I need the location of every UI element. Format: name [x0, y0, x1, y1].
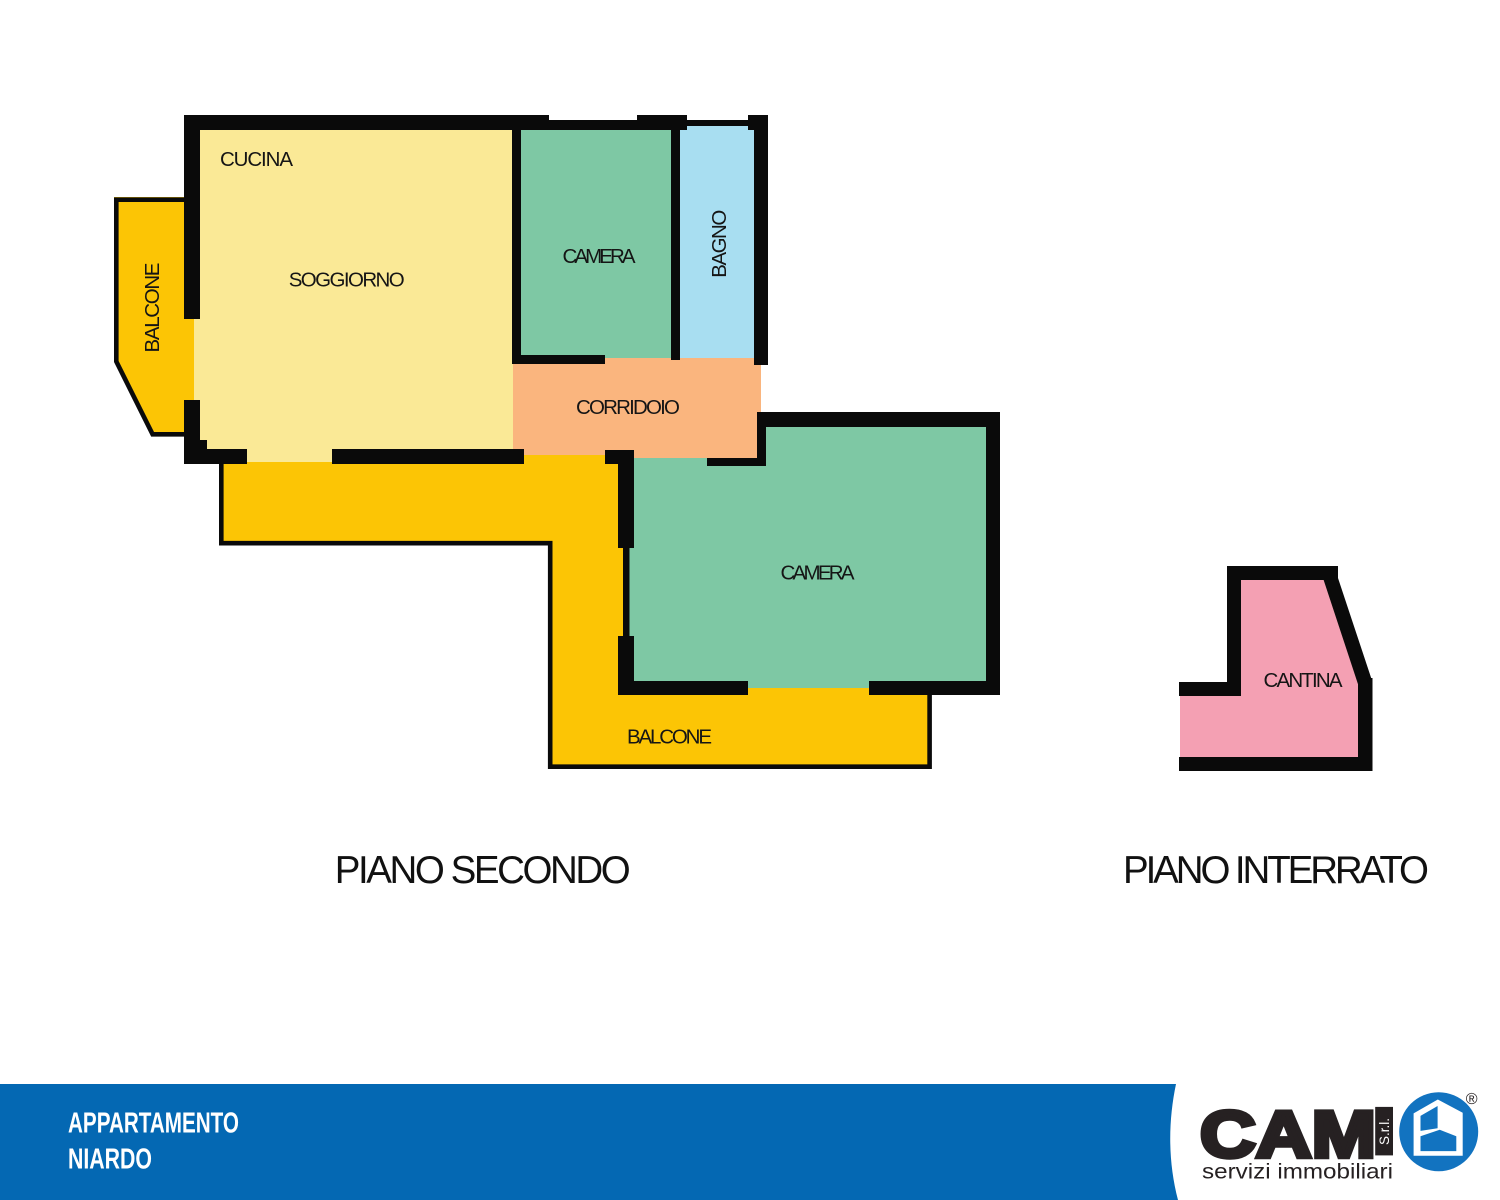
- svg-text:servizi immobiliari: servizi immobiliari: [1202, 1161, 1393, 1184]
- svg-text:BALCONE: BALCONE: [141, 263, 164, 353]
- svg-text:BALCONE: BALCONE: [627, 726, 712, 749]
- svg-text:®: ®: [1466, 1091, 1478, 1108]
- svg-text:CUCINA: CUCINA: [220, 148, 293, 171]
- svg-text:CAMERA: CAMERA: [781, 562, 855, 585]
- svg-text:S.r.l.: S.r.l.: [1377, 1118, 1392, 1145]
- svg-text:APPARTAMENTO: APPARTAMENTO: [68, 1107, 239, 1139]
- svg-text:CANTINA: CANTINA: [1264, 669, 1343, 692]
- svg-text:CAMERA: CAMERA: [563, 245, 636, 268]
- svg-text:PIANO INTERRATO: PIANO INTERRATO: [1123, 849, 1429, 892]
- svg-text:BAGNO: BAGNO: [708, 210, 731, 278]
- svg-text:SOGGIORNO: SOGGIORNO: [289, 269, 405, 292]
- svg-text:CORRIDOIO: CORRIDOIO: [576, 396, 680, 419]
- svg-text:NIARDO: NIARDO: [68, 1143, 152, 1175]
- svg-text:PIANO SECONDO: PIANO SECONDO: [335, 849, 631, 892]
